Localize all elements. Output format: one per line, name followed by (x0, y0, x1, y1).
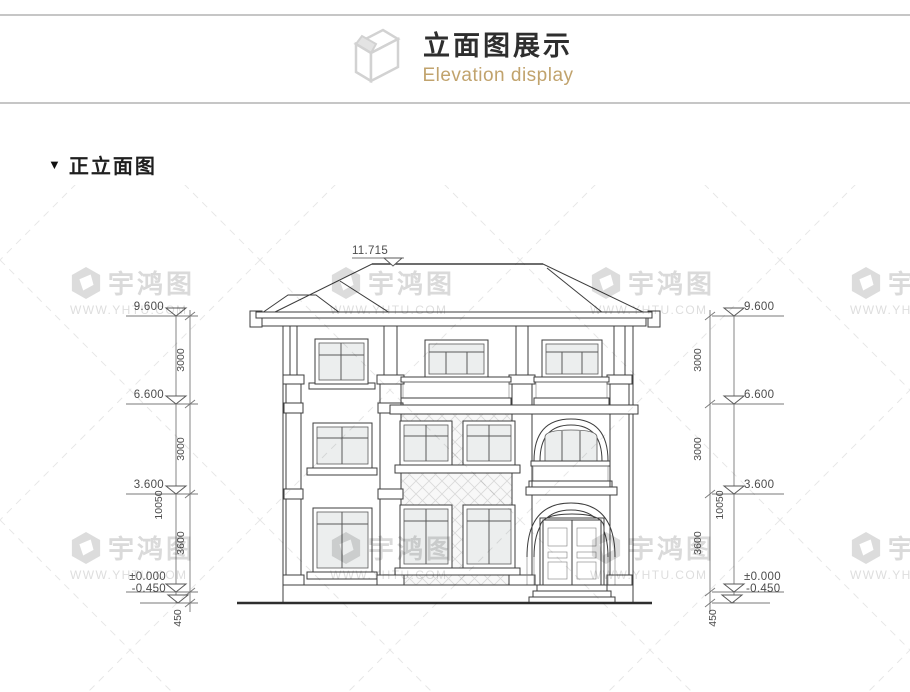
dim-label: 3.600 (744, 479, 774, 491)
dim-label: 3600 (175, 531, 187, 555)
window-2f-center-2 (463, 421, 515, 465)
front-elevation-drawing: 11.715 9.600 6.600 3.600 ±0.000 -0.450 3… (0, 0, 910, 692)
dim-label: 9.600 (744, 301, 774, 313)
dim-label: 6.600 (744, 389, 774, 401)
dim-label: 3000 (175, 437, 187, 461)
dim-label: -0.450 (132, 583, 166, 595)
dim-label: 450 (707, 609, 719, 627)
page: 立面图展示 Elevation display ▼ 正立面图 (0, 0, 910, 692)
sill-band-1f (395, 568, 520, 575)
window-1f-center-1 (400, 505, 452, 568)
window-1f-center-2 (463, 505, 515, 568)
house-elevation (237, 264, 660, 603)
window-1f-left (307, 508, 377, 579)
dim-label: 450 (172, 609, 184, 627)
window-2f-left (307, 423, 377, 475)
dim-label: 10050 (153, 490, 165, 519)
sill-band-2f (395, 465, 520, 473)
dim-label: 11.715 (352, 245, 388, 257)
dim-label: ±0.000 (744, 571, 781, 583)
window-2f-center-1 (400, 421, 452, 465)
eave-fascia (250, 311, 660, 327)
dim-label: 3.600 (134, 479, 164, 491)
window-3f-left (309, 339, 375, 389)
dim-label: 3000 (692, 437, 704, 461)
entrance-door (527, 503, 615, 585)
dim-label: 3000 (175, 348, 187, 372)
dim-label: 9.600 (134, 301, 164, 313)
right-dimension-column: 9.600 6.600 3.600 ±0.000 -0.450 3000 300… (692, 301, 784, 627)
dim-label: 10050 (714, 490, 726, 519)
dim-label: ±0.000 (129, 571, 166, 583)
window-3f-center (425, 340, 488, 378)
entrance-steps (529, 585, 615, 603)
ridge-dimension: 11.715 (352, 245, 404, 266)
left-dimension-column: 9.600 6.600 3.600 ±0.000 -0.450 3000 300… (126, 301, 198, 627)
roof (262, 264, 645, 313)
window-3f-right (542, 340, 602, 378)
dim-label: -0.450 (746, 583, 780, 595)
arched-window-2f (526, 419, 617, 495)
dim-label: 3000 (692, 348, 704, 372)
dim-label: 3600 (692, 531, 704, 555)
dim-label: 6.600 (134, 389, 164, 401)
